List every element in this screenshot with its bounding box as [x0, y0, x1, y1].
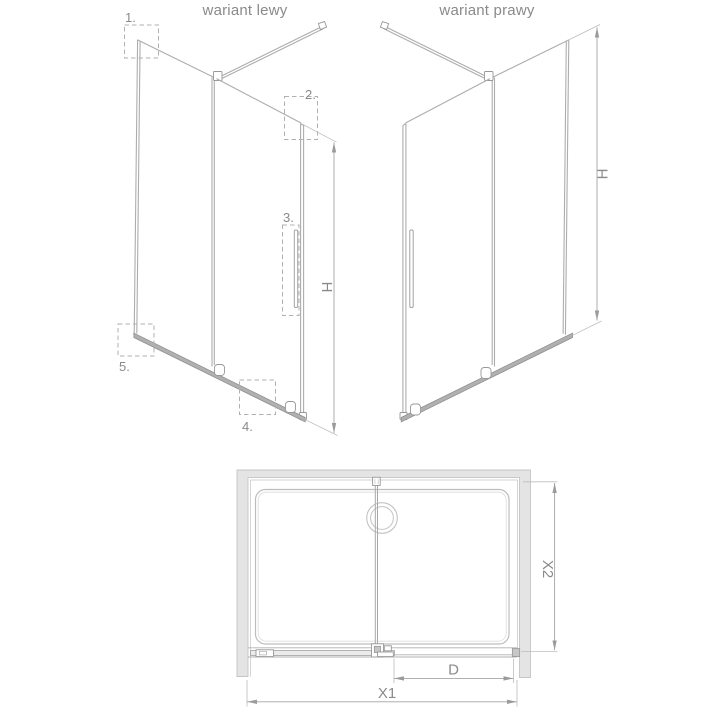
right-panel-door-junction-edge: [492, 78, 494, 367]
left-dim-h-label: H: [318, 282, 335, 293]
plan-view: X2 D X1: [237, 470, 558, 707]
plan-center-guide: [378, 652, 394, 657]
left-roller-front: [286, 402, 296, 413]
left-roller-rear: [215, 365, 225, 376]
callout-label-4: 4.: [242, 419, 253, 434]
plan-shower-tray-outer: [256, 490, 510, 645]
left-dim-h-extension-lines: [303, 125, 338, 436]
plan-door-slider-block: [256, 650, 274, 657]
right-support-bar-wall-cap: [380, 22, 388, 30]
callout-label-2: 2.: [305, 87, 316, 102]
left-fixed-panel-wall-profile: [134, 40, 140, 335]
left-support-bar: [219, 27, 323, 80]
plan-center-stopper: [384, 646, 391, 651]
left-fixed-panel-top-edge: [138, 40, 217, 79]
right-door-top-edge: [406, 79, 491, 123]
right-door-leading-edge-profile: [403, 124, 406, 417]
right-fixed-panel-top-edge: [490, 40, 569, 79]
left-variant-diagram: wariant lewy 1. 2. 3. 4. 5.: [118, 2, 338, 436]
right-dim-h-label: H: [595, 169, 612, 180]
plan-dim-d-label: D: [448, 662, 459, 679]
shower-enclosure-technical-drawing: wariant lewy 1. 2. 3. 4. 5.: [0, 0, 720, 720]
left-door-handle: [294, 230, 297, 308]
right-variant-title: wariant prawy: [438, 2, 534, 19]
left-support-bar-wall-cap: [318, 22, 326, 30]
plan-track-wall-mount: [512, 649, 519, 657]
plan-fixed-glass-panel: [375, 478, 377, 644]
left-panel-door-junction-edge: [212, 78, 214, 367]
right-roller-rear: [481, 368, 491, 379]
right-variant-diagram: wariant prawy H: [380, 2, 611, 422]
callout-label-3: 3.: [283, 210, 294, 225]
plan-shower-tray-inner: [258, 492, 506, 641]
left-door-leading-edge-profile: [301, 124, 304, 417]
plan-dim-x1-label: X1: [378, 685, 396, 702]
drawing-canvas: wariant lewy 1. 2. 3. 4. 5.: [0, 0, 720, 720]
left-variant-title: wariant lewy: [202, 2, 288, 19]
right-door-handle: [410, 230, 413, 308]
right-fixed-panel-wall-profile: [563, 40, 569, 335]
left-bottom-rail: [134, 333, 305, 422]
callout-label-1: 1.: [125, 10, 136, 25]
plan-glass-wall-fitting: [373, 477, 381, 485]
callout-label-5: 5.: [119, 359, 130, 374]
right-support-bar: [384, 27, 488, 80]
left-door-top-edge: [217, 79, 302, 123]
plan-drain-inner-circle: [371, 507, 394, 530]
plan-drain-outer-circle: [367, 503, 398, 534]
plan-dim-x2-label: X2: [539, 560, 556, 578]
right-roller-front: [411, 404, 421, 415]
